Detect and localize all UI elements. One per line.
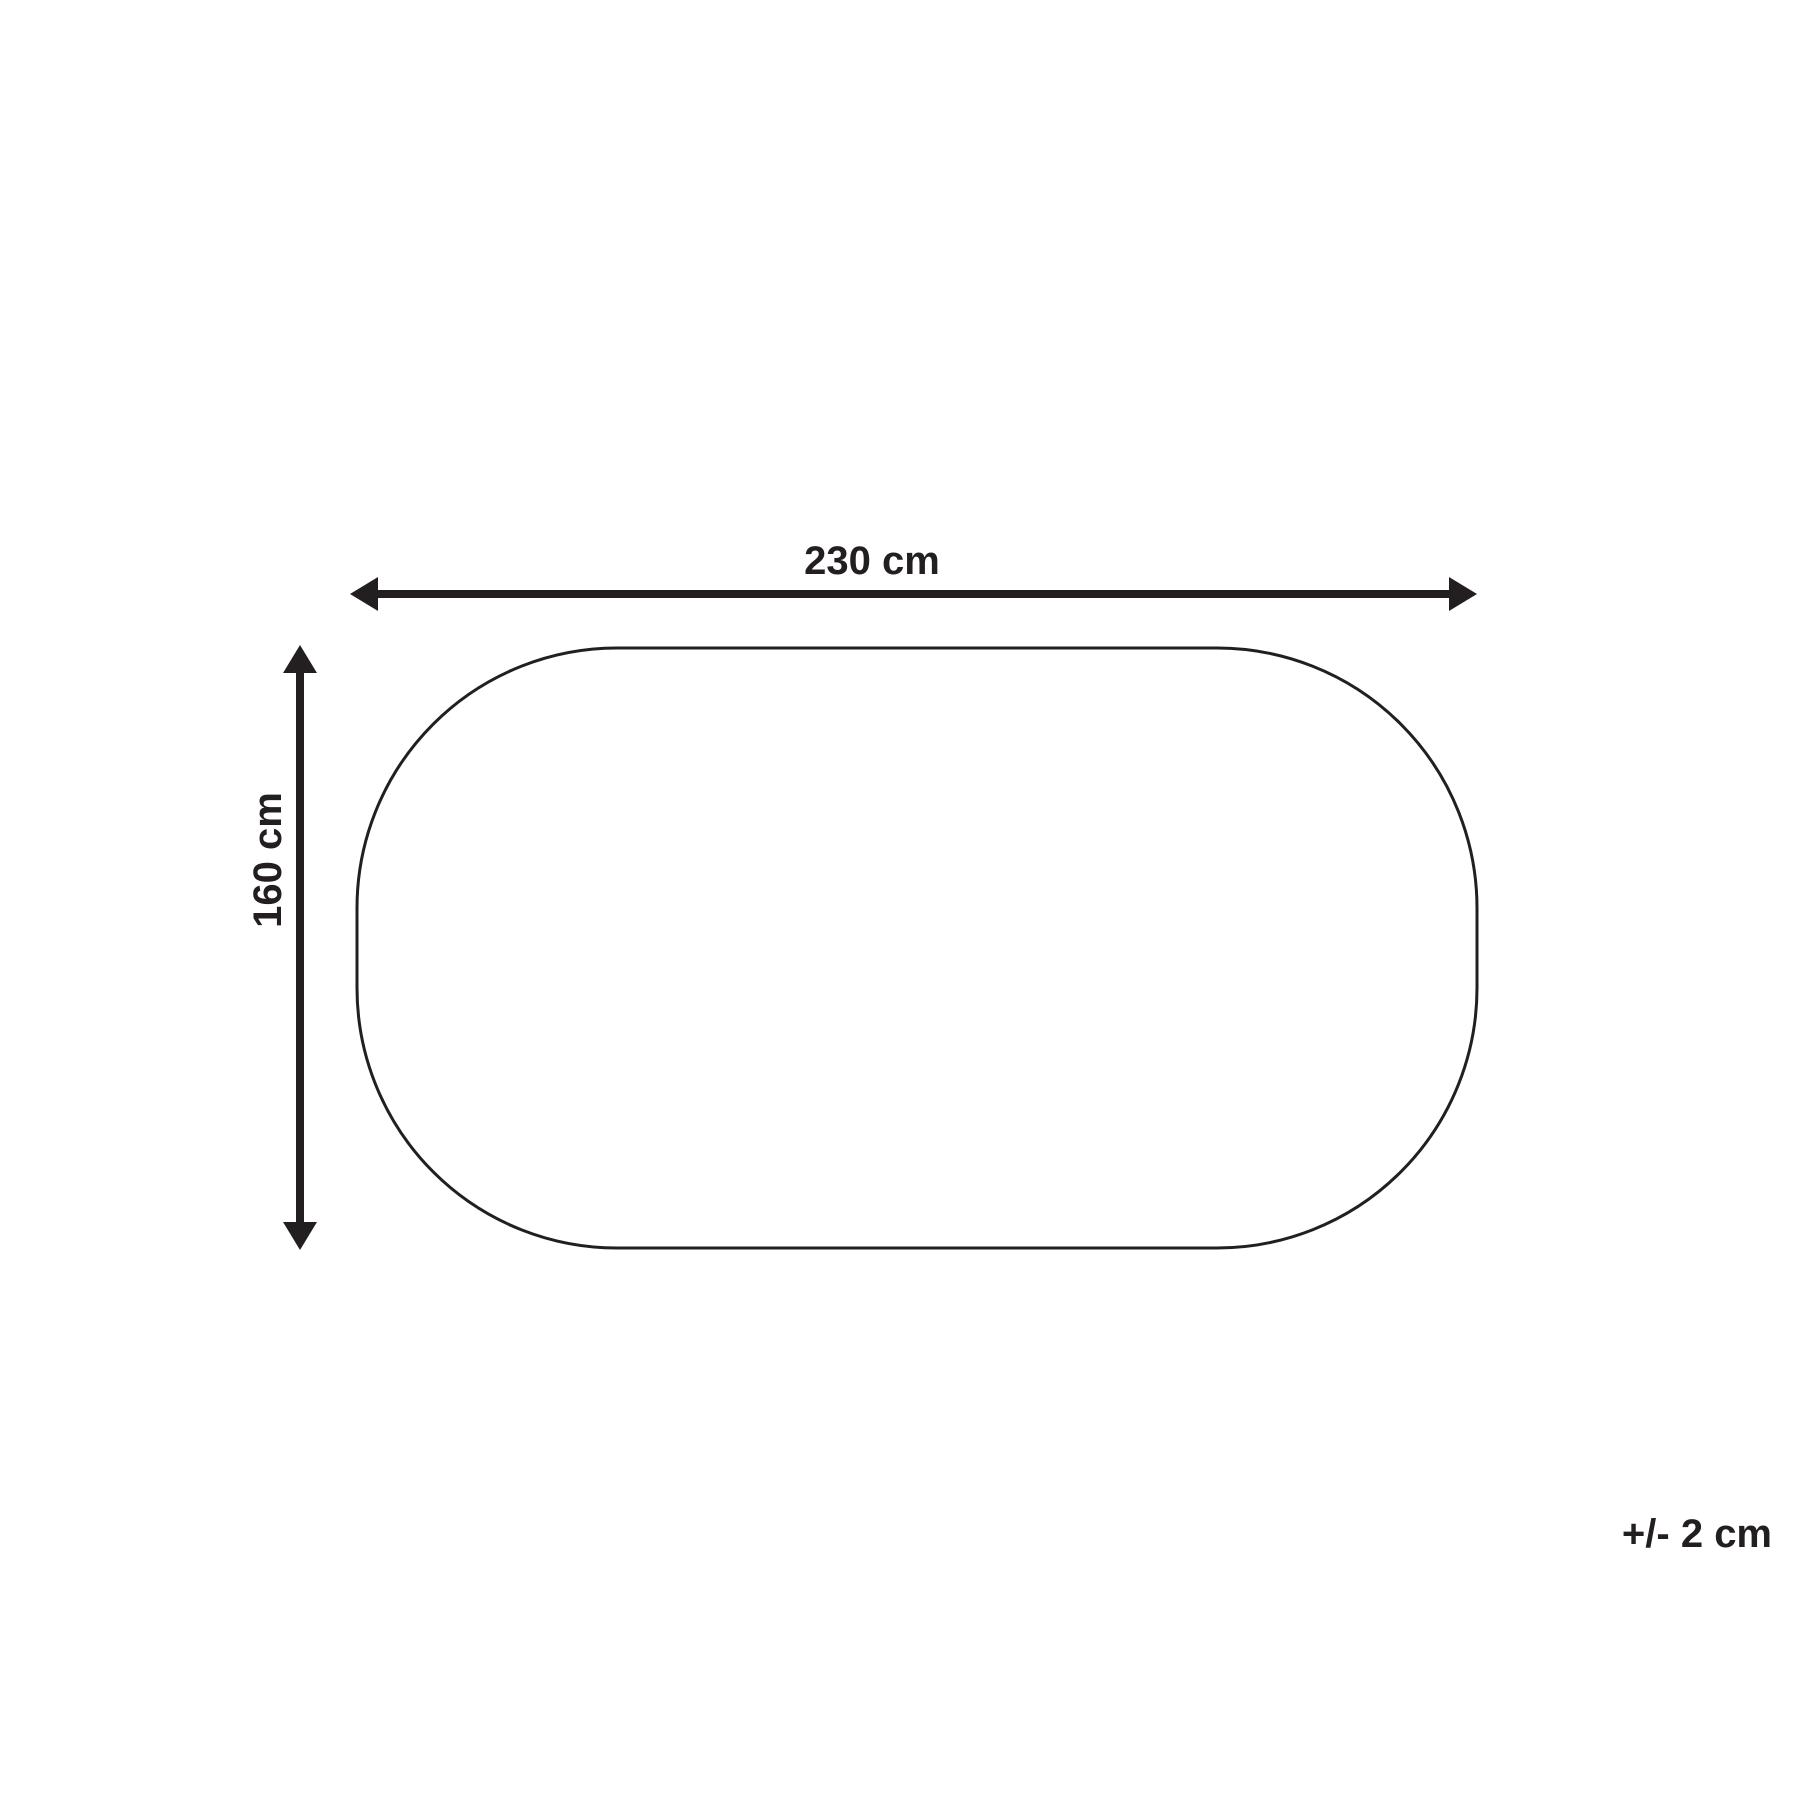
arrowhead-right-icon [1449, 577, 1477, 611]
arrowhead-up-icon [283, 645, 317, 673]
dimension-diagram: 230 cm 160 cm +/- 2 cm [0, 0, 1800, 1800]
arrowhead-down-icon [283, 1222, 317, 1250]
tolerance-label: +/- 2 cm [1622, 1514, 1772, 1554]
height-dimension-label: 160 cm [248, 792, 288, 928]
width-dimension-label: 230 cm [804, 541, 940, 581]
product-outline-shape [357, 648, 1477, 1248]
arrowhead-left-icon [350, 577, 378, 611]
height-dimension-arrow [283, 645, 317, 1250]
